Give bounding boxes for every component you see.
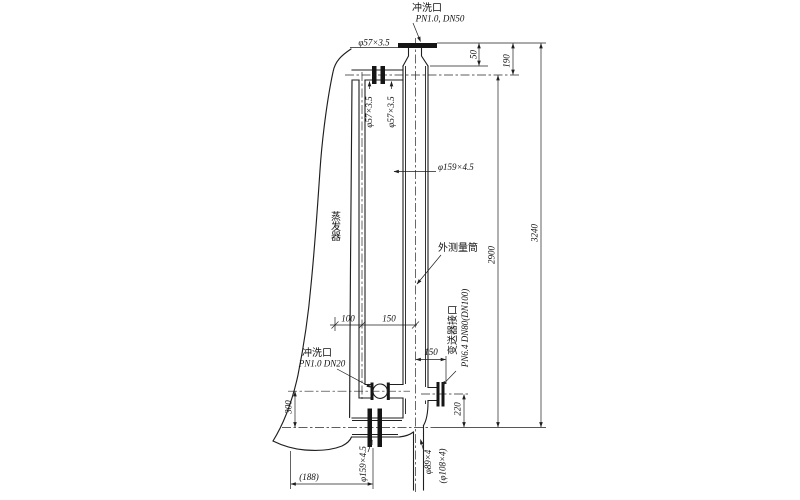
drain-size: φ89×4 [423,449,433,474]
drain-pipe [414,426,424,491]
riser-right-size: φ57×3.5 [386,96,396,128]
drawing-svg: 冲洗口 PN1.0, DN50 φ57×3.5 φ57×3.5 φ57×3.5 … [0,0,800,500]
bottom-flush-label: 冲洗口 [302,346,332,359]
dim-50: 50 [469,50,479,60]
dim-150: 150 [382,314,396,324]
vessel-outline [273,49,352,450]
leader-chamber [417,255,441,284]
top-flush-port-spec: PN1.0, DN50 [415,14,465,24]
dim-2900: 2900 [487,246,497,265]
measuring-chamber [398,43,437,437]
dim-300: 300 [284,400,294,415]
bottom-flange-left [368,409,373,448]
dim-100: 100 [341,314,355,324]
riser-left-size: φ57×3.5 [364,96,374,128]
dim-188: (188) [299,472,319,482]
top-flange [398,43,437,48]
transmitter-flange-a [437,382,440,407]
dim-3240: 3240 [530,224,540,244]
top-pipe-flange-left [372,66,377,84]
top-nozzle-size: φ57×3.5 [358,38,390,48]
dimension-lines [291,44,541,485]
extension-lines [291,43,547,489]
dim-190: 190 [502,54,512,68]
leader-top-port [413,23,421,42]
chamber-diameter: φ159×4.5 [438,162,474,172]
leader-transmitter [442,371,456,386]
dim-220: 220 [453,402,463,416]
vessel-name: 蒸发器 [329,211,341,242]
drain-size-alt: (φ108×4) [438,448,448,483]
top-flush-port-label: 冲洗口 [412,1,442,14]
bottom-flange-right [378,409,383,448]
top-pipe-flange-right [381,66,386,84]
chamber-name: 外测量筒 [438,241,478,254]
transmitter-spec: PN6.4 DN80(DN100) [460,289,470,369]
transmitter-label: 变送器接口 [446,305,459,355]
leader-bottom-flush [337,369,372,388]
dim-150-port: 150 [424,347,438,357]
transmitter-flange-b [442,382,445,407]
piping-drawing: 冲洗口 PN1.0, DN50 φ57×3.5 φ57×3.5 φ57×3.5 … [0,0,800,500]
transmitter-port [428,382,445,407]
bottom-pipe-size: φ159×4.5 [358,446,368,482]
centerlines [282,38,520,492]
bottom-flush-spec: PN1.0 DN20 [298,359,346,369]
